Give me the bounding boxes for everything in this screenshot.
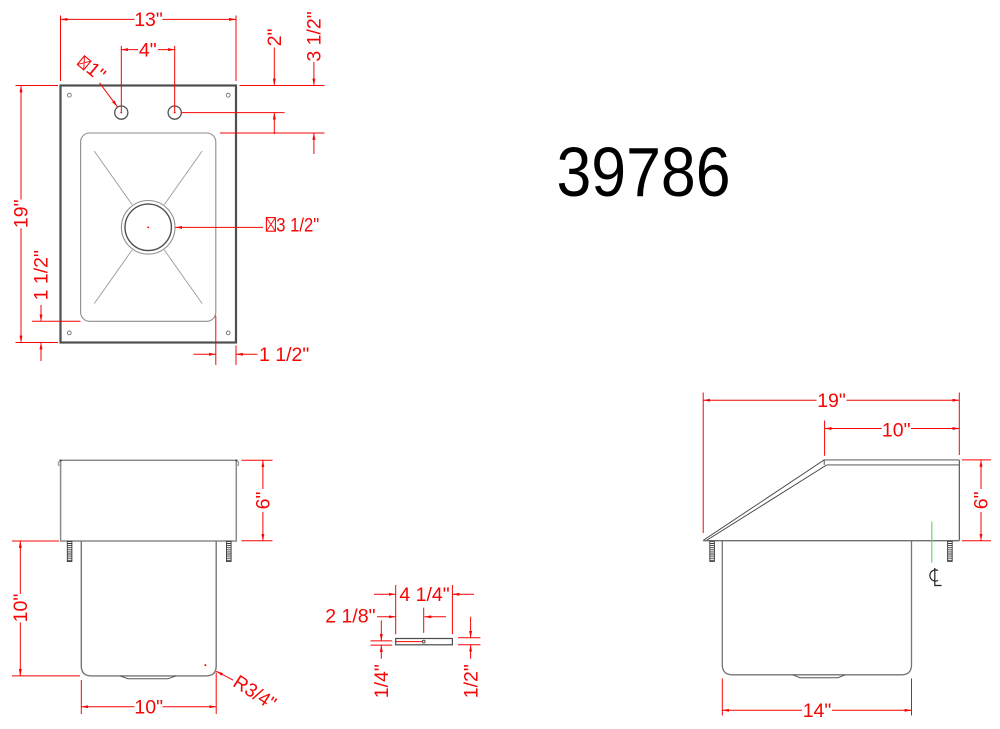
svg-text:10": 10" xyxy=(882,419,911,441)
svg-text:19": 19" xyxy=(11,199,33,228)
svg-text:14": 14" xyxy=(803,700,832,722)
svg-text:1/4": 1/4" xyxy=(371,664,393,698)
svg-text:1 1/2": 1 1/2" xyxy=(259,344,309,366)
svg-text:4 1/4": 4 1/4" xyxy=(399,584,449,606)
svg-text:2 1/8": 2 1/8" xyxy=(325,606,375,628)
svg-text:6": 6" xyxy=(971,491,993,509)
svg-text:1/2": 1/2" xyxy=(460,664,482,698)
svg-text:6": 6" xyxy=(253,492,275,510)
svg-text:3 1/2": 3 1/2" xyxy=(276,214,319,236)
svg-text:1 1/2": 1 1/2" xyxy=(30,250,52,300)
svg-text:4": 4" xyxy=(139,39,157,61)
svg-text:13": 13" xyxy=(134,9,163,31)
svg-text:R3/4": R3/4" xyxy=(229,671,280,715)
svg-text:10": 10" xyxy=(134,696,163,718)
svg-text:2": 2" xyxy=(264,28,286,46)
svg-text:3 1/2": 3 1/2" xyxy=(304,11,326,61)
svg-text:10": 10" xyxy=(10,594,32,623)
svg-text:19": 19" xyxy=(817,390,846,412)
svg-text:39786: 39786 xyxy=(557,133,731,211)
